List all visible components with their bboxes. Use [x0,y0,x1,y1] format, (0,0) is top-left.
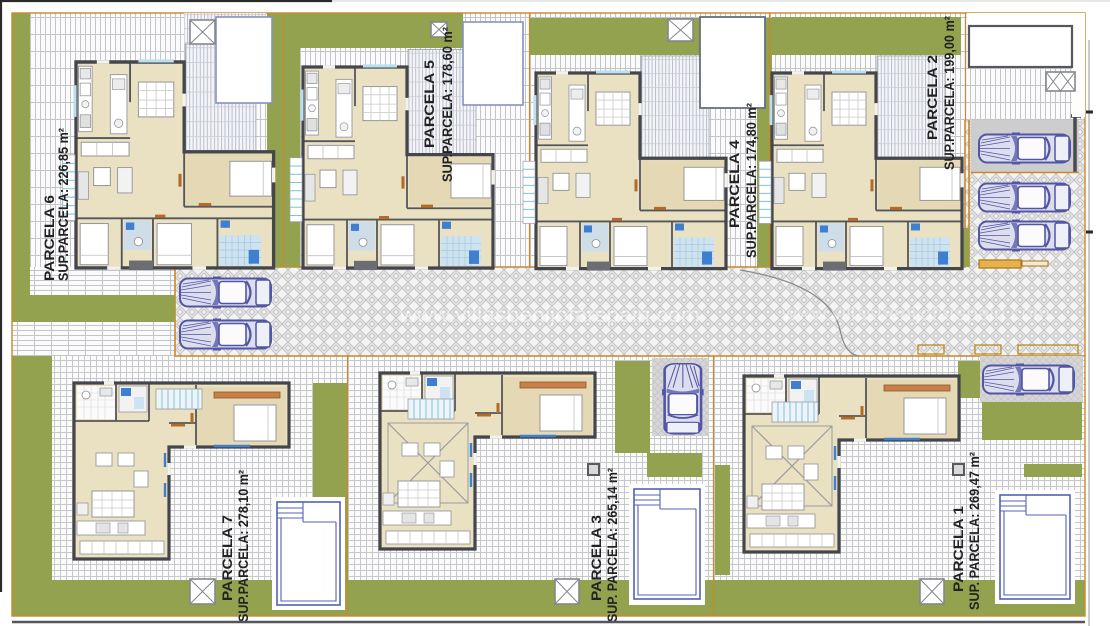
svg-text:PARCELA 3: PARCELA 3 [588,515,604,601]
svg-text:SUP.PARCELA: 278,10 m²: SUP.PARCELA: 278,10 m² [235,470,251,622]
svg-text:PARCELA 4: PARCELA 4 [726,140,742,228]
svg-text:PARCELA 7: PARCELA 7 [219,515,235,601]
svg-text:SUP.PARCELA: 178,60 m²: SUP.PARCELA: 178,60 m² [439,27,455,182]
svg-text:www.villasbenijofarspain.com: www.villasbenijofarspain.com [399,304,700,327]
svg-text:SUP.PARCELA: 199,00 m²: SUP.PARCELA: 199,00 m² [941,16,957,170]
svg-text:SUP. PARCELA: 269,47 m²: SUP. PARCELA: 269,47 m² [966,452,982,610]
svg-text:SUP. PARCELA: 265,14 m²: SUP. PARCELA: 265,14 m² [604,468,620,622]
svg-text:PARCELA 5: PARCELA 5 [421,60,437,148]
svg-text:PARCELA 1: PARCELA 1 [950,506,966,592]
svg-text:PARCELA 2: PARCELA 2 [924,55,940,140]
svg-text:SUP.PARCELA: 226,85 m²: SUP.PARCELA: 226,85 m² [55,128,71,281]
svg-text:www.villasbenijofarspain.com: www.villasbenijofarspain.com [781,304,1050,325]
svg-text:SUP.PARCELA: 174,80 m²: SUP.PARCELA: 174,80 m² [743,103,759,258]
